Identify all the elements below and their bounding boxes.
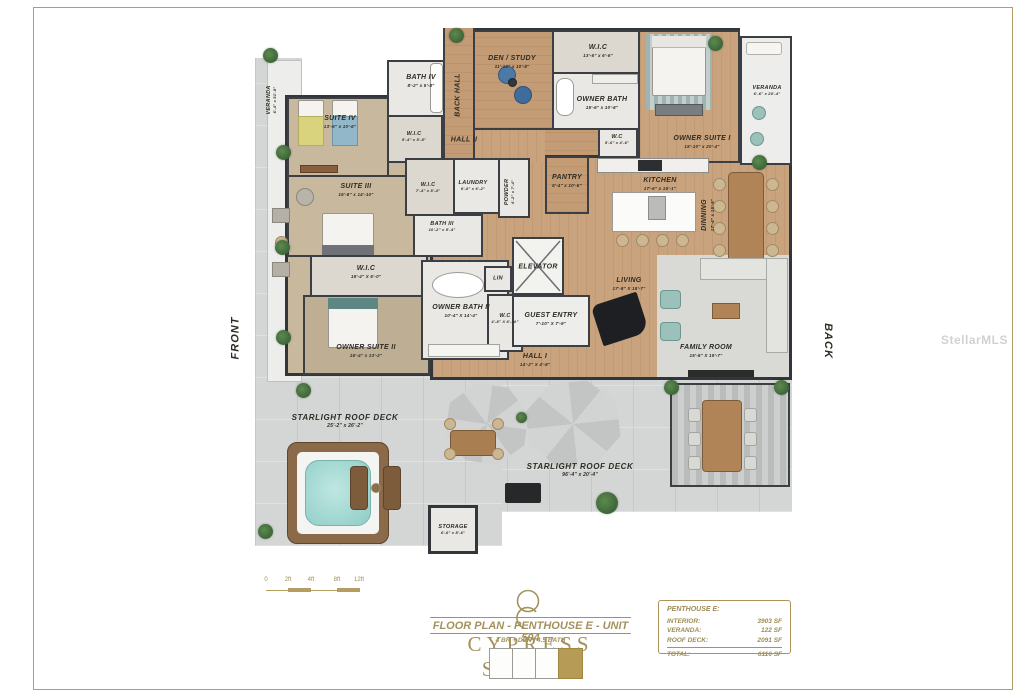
area-label: ROOF DECK: — [667, 636, 708, 645]
bathtub — [556, 78, 574, 116]
dining-chair — [766, 244, 779, 257]
double-vanity — [592, 74, 638, 84]
scale-tick: 0 — [264, 577, 267, 583]
bench — [655, 104, 703, 116]
area-value: 122 SF — [761, 626, 782, 635]
keyplan-unit — [535, 648, 560, 679]
patio-chair — [752, 106, 766, 120]
floor-plan-page: SUITE IV 13'-6" x 10'-6" BATH IV 8'-2" x… — [0, 0, 1024, 696]
area-value: 3903 SF — [757, 617, 782, 626]
room-dims: 7'-10" X 7'-9" — [525, 321, 578, 326]
room-label-owner-suite-i: OWNER SUITE I 15'-10" x 20'-4" — [673, 135, 730, 149]
room-name: DEN / STUDY — [488, 55, 536, 64]
keyplan-unit — [512, 648, 537, 679]
room-name: HALL II — [451, 137, 477, 146]
outdoor-chair — [444, 448, 456, 460]
armchair — [660, 322, 681, 341]
armchair — [514, 86, 532, 104]
room-name: GUEST ENTRY — [525, 312, 578, 321]
plant — [516, 412, 527, 423]
plant — [708, 36, 723, 51]
lounge-chair — [350, 466, 368, 510]
room-dims: 6'-6" x 8'-6" — [438, 531, 467, 536]
room-name: BACK HALL — [455, 73, 464, 117]
area-table: PENTHOUSE E: INTERIOR: 3903 SF VERANDA: … — [658, 600, 791, 654]
front-label: FRONT — [229, 317, 241, 360]
room-dims: 96'-4" x 20'-4" — [527, 472, 634, 478]
outdoor-chair — [492, 418, 504, 430]
room-dims: 15'-10" x 20'-4" — [673, 144, 730, 149]
room-dims: 10'-2" x 5'-4" — [429, 228, 456, 233]
plant — [596, 492, 618, 514]
room-name: DINNING — [701, 199, 710, 231]
room-name: STARLIGHT ROOF DECK — [292, 413, 399, 423]
room-label-wc-owner: W.C 5'-6" x 4'-6" — [605, 134, 629, 146]
room-label-roof-deck-bottom: STARLIGHT ROOF DECK 96'-4" x 20'-4" — [527, 462, 634, 478]
room-name: ELEVATOR — [518, 264, 557, 273]
room-name: FAMILY ROOM — [680, 344, 732, 353]
outdoor-table — [450, 430, 496, 456]
side-table — [508, 78, 517, 87]
room-dims: 17'-8" X 18'-7" — [613, 286, 646, 291]
area-label: VERANDA: — [667, 626, 701, 635]
bar-stool — [676, 234, 689, 247]
dining-chair — [766, 178, 779, 191]
room-dims: 14'-2" X 4'-8" — [520, 362, 550, 367]
room-name: LIVING — [613, 277, 646, 286]
area-label: INTERIOR: — [667, 617, 700, 626]
outdoor-chair — [444, 418, 456, 430]
patio-chair — [750, 132, 764, 146]
room-name: OWNER BATH — [577, 96, 628, 105]
lounge-chair — [383, 466, 401, 510]
room-label-back-hall: BACK HALL — [455, 73, 464, 117]
room-dims: 16'-4" x 13'-2" — [336, 353, 395, 358]
media-console — [688, 370, 754, 377]
room-label-family-room: FAMILY ROOM 15'-8" X 19'-7" — [680, 344, 732, 358]
room-label-bath-iii: BATH III 10'-2" x 5'-4" — [429, 221, 456, 233]
dresser — [300, 165, 338, 173]
room-dims: 5'-6" x 4'-6" — [605, 141, 629, 146]
plant — [258, 524, 273, 539]
room-dims: 5'-4" x 5'-8" — [402, 138, 426, 143]
double-vanity — [428, 344, 500, 357]
outdoor-chair — [744, 432, 757, 446]
area-row: ROOF DECK: 2091 SF — [667, 636, 782, 645]
plant — [276, 330, 291, 345]
bar-stool — [636, 234, 649, 247]
dining-chair — [766, 200, 779, 213]
outdoor-dining-table — [702, 400, 742, 472]
room-label-storage: STORAGE 6'-6" x 8'-6" — [438, 524, 467, 536]
room-label-roof-deck-left: STARLIGHT ROOF DECK 25'-2" x 26'-2" — [292, 413, 399, 429]
side-table — [371, 483, 381, 493]
room-label-dining: DINNING 17'-4" x 15'-5" — [701, 199, 715, 231]
outdoor-chair — [688, 432, 701, 446]
plant — [276, 145, 291, 160]
patio-chair — [272, 262, 290, 277]
room-name: PANTRY — [552, 174, 582, 183]
scale-tick: 2ft — [285, 577, 292, 583]
room-name: OWNER SUITE I — [673, 135, 730, 144]
bar-stool — [656, 234, 669, 247]
armchair — [660, 290, 681, 309]
room-label-owner-bath-ii: OWNER BATH II 10'-4" X 14'-4" — [432, 304, 489, 318]
room-dims: 8'-2" x 5'-8" — [406, 83, 436, 88]
plant — [774, 380, 789, 395]
room-name: W.I.C — [583, 44, 613, 53]
area-table-header: PENTHOUSE E: — [667, 606, 782, 613]
room-dims: 15'-6" x 10'-8" — [577, 105, 628, 110]
room-label-living: LIVING 17'-8" X 18'-7" — [613, 277, 646, 291]
dining-chair — [713, 244, 726, 257]
dining-table — [728, 172, 764, 264]
room-name: OWNER SUITE II — [336, 344, 395, 353]
plant — [664, 380, 679, 395]
room-label-hall-ii: HALL II — [451, 137, 477, 146]
room-dims: 13'-6" x 10'-6" — [324, 124, 356, 129]
room-dims: 13'-6" x 6'-6" — [583, 53, 613, 58]
plant — [752, 155, 767, 170]
island-sink — [648, 196, 666, 220]
room-label-wic-owner-i: W.I.C 13'-6" x 6'-6" — [583, 44, 613, 58]
room-dims: 6'-6" x 20'-4" — [752, 92, 781, 97]
outdoor-chair — [744, 408, 757, 422]
room-label-linen: LIN — [493, 276, 503, 283]
bed-pillows — [652, 36, 706, 48]
room-label-elevator: ELEVATOR — [518, 264, 557, 273]
room-label-bath-iv: BATH IV 8'-2" x 5'-8" — [406, 74, 436, 88]
room-label-wic-suite-iii: W.I.C 7'-4" x 5'-4" — [416, 182, 440, 194]
scale-bar-segment — [337, 588, 360, 592]
area-value: 2091 SF — [757, 636, 782, 645]
room-name: W.I.C — [351, 265, 381, 274]
area-label: TOTAL: — [667, 650, 690, 659]
title-divider — [430, 617, 631, 618]
room-label-veranda-left: VERANDA 6'-4" x 51'-8" — [266, 85, 278, 114]
room-label-den-study: DEN / STUDY 11'-10" x 10'-8" — [488, 55, 536, 69]
room-label-pantry: PANTRY 5'-4" x 10'-6" — [552, 174, 582, 188]
room-name: LIN — [493, 276, 503, 283]
keyplan-unit-selected — [558, 648, 583, 679]
room-dims: 5'-4" x 10'-6" — [552, 183, 582, 188]
outdoor-chair — [688, 456, 701, 470]
room-label-wic-owner-ii: W.I.C 18'-4" X 6'-0" — [351, 265, 381, 279]
plan-subtitle: 4 BR + DEN / 4.5 BATH — [428, 637, 633, 644]
room-dims: 15'-8" X 19'-7" — [680, 353, 732, 358]
room-dims: 16'-8" x 14'-10" — [338, 192, 373, 197]
patio-chair — [272, 208, 290, 223]
armchair — [296, 188, 314, 206]
room-label-owner-bath: OWNER BATH 15'-6" x 10'-8" — [577, 96, 628, 110]
dining-chair — [766, 222, 779, 235]
room-dims: 6'-4" x 51'-8" — [273, 85, 278, 114]
area-row: VERANDA: 122 SF — [667, 626, 782, 635]
scale-tick: 12ft — [354, 577, 364, 583]
room-name: HALL I — [520, 353, 550, 362]
scale-tick: 4ft — [308, 577, 315, 583]
room-dims: 18'-4" X 6'-0" — [351, 274, 381, 279]
room-dims: 7'-4" x 5'-4" — [416, 189, 440, 194]
room-label-powder: POWDER 4'-2" x 7'-4" — [504, 179, 516, 206]
watermark: StellarMLS — [941, 333, 1008, 347]
scale-bar-segment — [288, 588, 311, 592]
back-label: BACK — [822, 323, 834, 359]
room-dims: 25'-2" x 26'-2" — [292, 423, 399, 429]
area-total-divider — [667, 647, 782, 648]
room-dims: 11'-10" x 10'-8" — [488, 64, 536, 69]
plant — [275, 240, 290, 255]
room-name: SUITE IV — [324, 115, 356, 124]
room-dims: 4'-8" X 6'-10" — [491, 320, 518, 325]
room-label-wc-center: W.C 4'-8" X 6'-10" — [491, 313, 518, 325]
area-total-row: TOTAL: 6116 SF — [667, 650, 782, 659]
room-dims: 17'-6" x 15'-1" — [643, 186, 676, 191]
dining-chair — [713, 178, 726, 191]
room-name: KITCHEN — [643, 177, 676, 186]
room-name: BATH IV — [406, 74, 436, 83]
bar-stool — [616, 234, 629, 247]
room-label-owner-suite-ii: OWNER SUITE II 16'-4" x 13'-2" — [336, 344, 395, 358]
soaking-tub — [432, 272, 484, 298]
cooktop — [638, 160, 662, 171]
room-label-wic-suite-iv: W.I.C 5'-4" x 5'-8" — [402, 131, 426, 143]
room-label-kitchen: KITCHEN 17'-6" x 15'-1" — [643, 177, 676, 191]
coffee-table — [712, 303, 740, 319]
bed-headboard — [322, 245, 374, 255]
room-label-suite-iii: SUITE III 16'-8" x 14'-10" — [338, 183, 373, 197]
outdoor-chair — [688, 408, 701, 422]
plant — [449, 28, 464, 43]
veranda-right-floor — [740, 36, 792, 165]
room-label-guest-entry: GUEST ENTRY 7'-10" X 7'-9" — [525, 312, 578, 326]
area-row: INTERIOR: 3903 SF — [667, 617, 782, 626]
room-dims: 4'-2" x 7'-4" — [511, 179, 516, 206]
plant — [263, 48, 278, 63]
outdoor-chair — [492, 448, 504, 460]
room-label-hall-i: HALL I 14'-2" X 4'-8" — [520, 353, 550, 367]
room-name: SUITE III — [338, 183, 373, 192]
lounge-chair — [746, 42, 782, 55]
grill — [505, 483, 541, 503]
bed-blanket — [298, 116, 324, 146]
room-dims: 17'-4" x 15'-5" — [710, 199, 715, 231]
scale-tick: 8ft — [334, 577, 341, 583]
room-name: OWNER BATH II — [432, 304, 489, 313]
room-label-veranda-right: VERANDA 6'-6" x 20'-4" — [752, 85, 781, 97]
area-value: 6116 SF — [758, 650, 782, 659]
room-dims: 10'-4" X 14'-4" — [432, 313, 489, 318]
plant — [296, 383, 311, 398]
keyplan-unit — [489, 648, 514, 679]
room-label-laundry: LAUNDRY 6'-8" x 6'-2" — [459, 180, 488, 192]
bed-pillows — [328, 298, 378, 309]
room-label-suite-iv: SUITE IV 13'-6" x 10'-6" — [324, 115, 356, 129]
sectional-sofa — [766, 258, 788, 353]
outdoor-chair — [744, 456, 757, 470]
room-dims: 6'-8" x 6'-2" — [459, 187, 488, 192]
title-divider — [430, 633, 631, 634]
room-name: STARLIGHT ROOF DECK — [527, 462, 634, 472]
